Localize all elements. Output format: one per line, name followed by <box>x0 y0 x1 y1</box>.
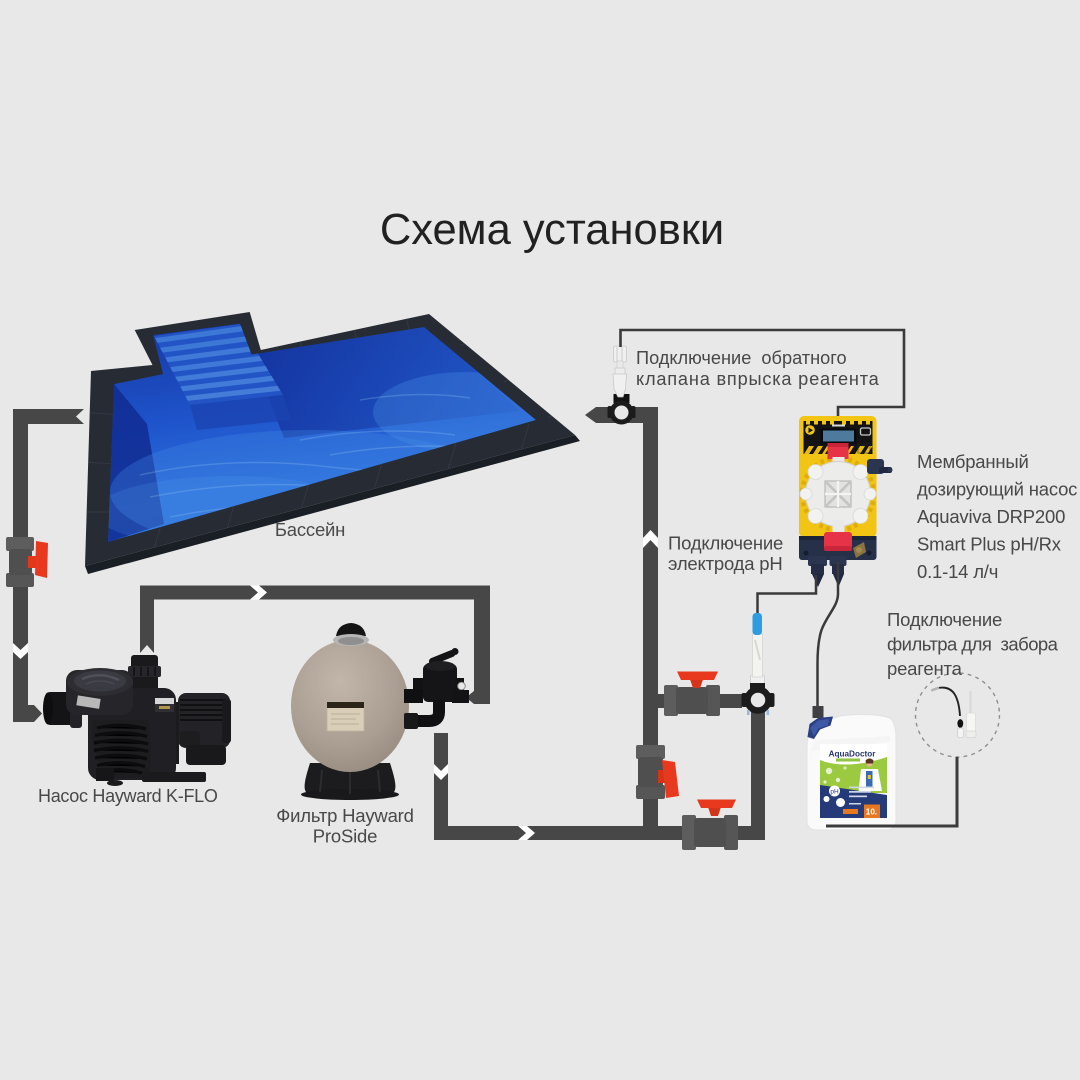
svg-text:Мембранный: Мембранный <box>917 451 1029 472</box>
svg-text:Подключение обратного: Подключение обратного <box>636 348 847 368</box>
svg-text:Aquaviva DRP200: Aquaviva DRP200 <box>917 506 1065 527</box>
svg-text:0.1-14 л/ч: 0.1-14 л/ч <box>917 561 998 582</box>
svg-text:Схема установки: Схема установки <box>380 206 724 254</box>
svg-text:дозирующий насос: дозирующий насос <box>917 479 1077 500</box>
svg-text:AquaDoctor: AquaDoctor <box>829 750 877 759</box>
svg-text:10.: 10. <box>866 808 877 817</box>
svg-text:Насос Hayward K-FLO: Насос Hayward K-FLO <box>38 786 218 806</box>
svg-text:Фильтр Hayward: Фильтр Hayward <box>276 805 414 826</box>
svg-text:реагента: реагента <box>887 658 963 679</box>
svg-text:ProSide: ProSide <box>313 826 377 847</box>
svg-text:pH: pH <box>830 789 839 796</box>
svg-text:Подключение: Подключение <box>887 609 1002 630</box>
svg-text:клапана впрыска реагента: клапана впрыска реагента <box>636 369 880 389</box>
svg-text:Smart Plus pH/Rx: Smart Plus pH/Rx <box>917 534 1062 555</box>
svg-text:Подключение: Подключение <box>668 533 783 554</box>
svg-text:Бассейн: Бассейн <box>275 519 345 540</box>
svg-text:электрода pH: электрода pH <box>668 553 783 574</box>
svg-text:фильтра для забора: фильтра для забора <box>887 634 1059 655</box>
